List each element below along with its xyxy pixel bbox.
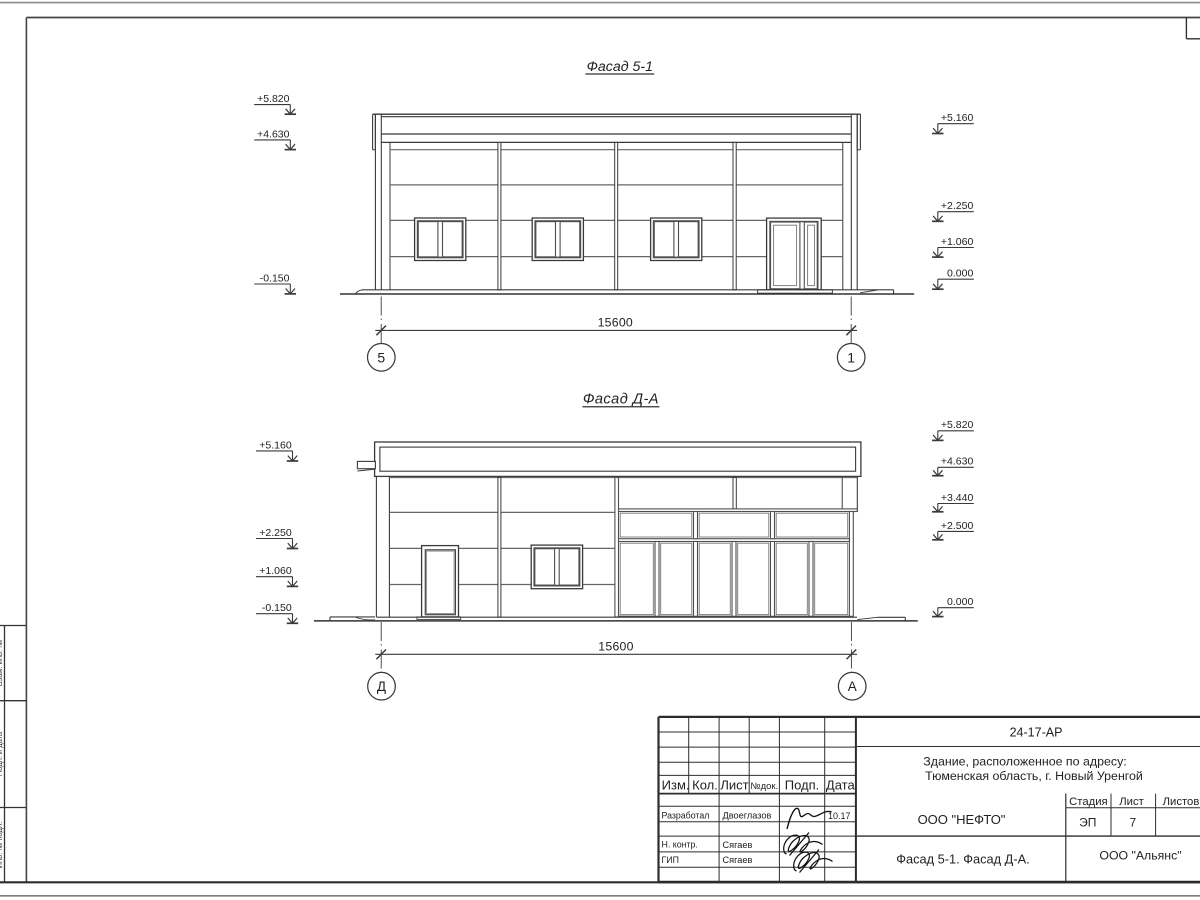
svg-text:10.17: 10.17 xyxy=(828,811,851,821)
svg-text:Сягаев: Сягаев xyxy=(723,840,753,850)
svg-text:+2.250: +2.250 xyxy=(259,527,292,539)
svg-text:Тюменская область, г. Новый Ур: Тюменская область, г. Новый Уренгой xyxy=(925,769,1143,783)
svg-text:1: 1 xyxy=(847,349,855,365)
svg-text:+5.820: +5.820 xyxy=(257,93,290,105)
svg-text:+5.160: +5.160 xyxy=(941,112,974,124)
svg-text:+4.630: +4.630 xyxy=(257,128,290,140)
svg-text:+3.440: +3.440 xyxy=(941,492,974,504)
svg-text:+4.630: +4.630 xyxy=(941,456,974,468)
svg-text:Стадия: Стадия xyxy=(1069,796,1108,808)
svg-text:0.000: 0.000 xyxy=(947,268,973,280)
svg-text:Фасад Д-А: Фасад Д-А xyxy=(583,392,659,408)
svg-text:Лист: Лист xyxy=(720,777,748,792)
svg-text:24-17-АР: 24-17-АР xyxy=(1010,726,1063,740)
svg-text:+2.250: +2.250 xyxy=(941,200,974,212)
svg-text:Инв. № подл.: Инв. № подл. xyxy=(0,822,4,869)
svg-text:Изм.: Изм. xyxy=(662,777,690,792)
svg-text:Дата: Дата xyxy=(826,777,856,792)
svg-text:15600: 15600 xyxy=(598,316,633,330)
svg-text:ООО "Альянс": ООО "Альянс" xyxy=(1099,848,1181,862)
svg-text:Кол.: Кол. xyxy=(692,777,718,792)
svg-text:Д: Д xyxy=(377,679,386,694)
svg-text:+2.500: +2.500 xyxy=(941,520,974,532)
svg-text:+5.820: +5.820 xyxy=(941,419,974,431)
svg-text:+1.060: +1.060 xyxy=(941,236,974,248)
svg-text:Подп. и дата: Подп. и дата xyxy=(0,731,4,776)
svg-text:-0.150: -0.150 xyxy=(260,272,290,284)
svg-text:15600: 15600 xyxy=(598,640,633,654)
svg-text:А: А xyxy=(848,679,857,694)
svg-text:Сягаев: Сягаев xyxy=(723,855,753,865)
svg-text:-0.150: -0.150 xyxy=(262,602,292,614)
svg-text:Н. контр.: Н. контр. xyxy=(662,840,698,850)
svg-text:+5.160: +5.160 xyxy=(259,439,292,451)
svg-text:Фасад 5-1: Фасад 5-1 xyxy=(587,59,653,75)
svg-text:№док.: №док. xyxy=(750,781,778,792)
svg-text:7: 7 xyxy=(1130,816,1137,830)
svg-text:Двоеглазов: Двоеглазов xyxy=(723,811,772,821)
svg-text:Взам. инв. №: Взам. инв. № xyxy=(0,640,4,686)
svg-text:+1.060: +1.060 xyxy=(259,565,292,577)
svg-text:Здание, расположенное по адрес: Здание, расположенное по адресу: xyxy=(923,754,1126,768)
svg-text:ЭП: ЭП xyxy=(1079,816,1096,830)
svg-text:Подп.: Подп. xyxy=(785,777,820,792)
svg-text:ООО "НЕФТО": ООО "НЕФТО" xyxy=(918,812,1006,827)
svg-text:Лист: Лист xyxy=(1119,796,1144,808)
svg-text:Разработал: Разработал xyxy=(662,811,710,821)
svg-text:Листов: Листов xyxy=(1163,796,1200,808)
svg-text:ГИП: ГИП xyxy=(662,855,679,865)
svg-text:5: 5 xyxy=(377,349,385,365)
svg-text:Фасад 5-1. Фасад Д-А.: Фасад 5-1. Фасад Д-А. xyxy=(896,852,1029,867)
svg-text:0.000: 0.000 xyxy=(947,596,973,608)
